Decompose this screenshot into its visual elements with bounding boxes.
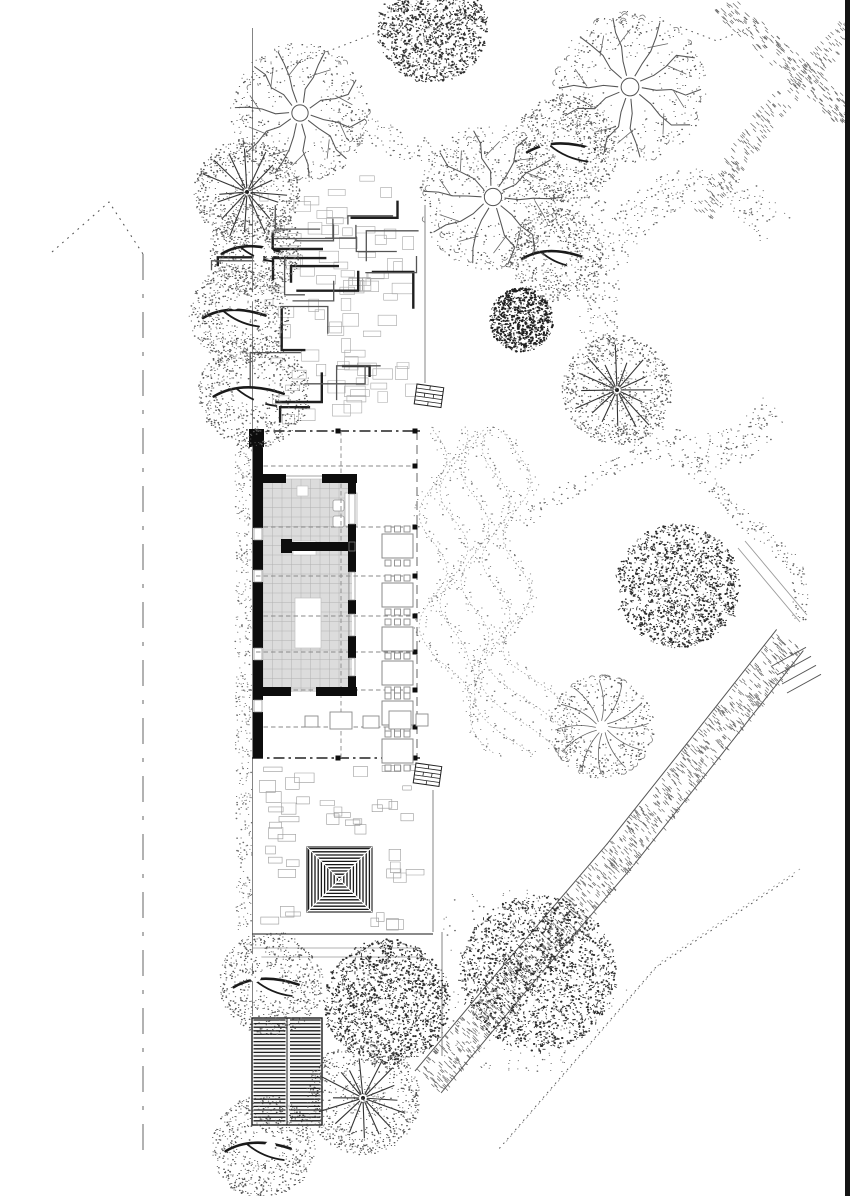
fixture — [333, 500, 344, 511]
terrace-waves — [414, 427, 581, 757]
chair — [385, 687, 391, 693]
window-opening — [254, 648, 262, 660]
table — [363, 716, 379, 728]
window-opening — [254, 700, 262, 712]
chair — [395, 575, 401, 581]
table — [305, 716, 318, 727]
path-band — [680, 24, 758, 41]
chair — [395, 609, 401, 615]
property-boundary — [52, 202, 143, 1158]
planting-strip — [236, 762, 252, 929]
chair — [395, 560, 401, 566]
table — [382, 583, 413, 607]
chair — [395, 765, 401, 771]
building-plan — [249, 429, 428, 772]
pavilion-roof — [307, 847, 372, 912]
table — [382, 627, 413, 651]
chair — [404, 653, 410, 659]
tree-symbol-leafyDark — [323, 939, 450, 1064]
column-marker — [413, 429, 418, 434]
chair — [404, 575, 410, 581]
chair — [395, 526, 401, 532]
path-band — [695, 22, 850, 219]
column-marker — [413, 688, 418, 693]
planting-strip — [235, 432, 252, 757]
tree-symbol-leafyDark — [616, 524, 740, 648]
gate-ramp — [414, 384, 444, 408]
boundary-apex — [52, 202, 143, 254]
path-band — [580, 169, 790, 471]
slatted-deck — [252, 1018, 322, 1125]
tree-symbol-radial — [562, 336, 671, 445]
table — [416, 714, 428, 726]
chair — [385, 693, 391, 699]
site-plan-canvas — [0, 0, 850, 1196]
chair — [395, 619, 401, 625]
column-marker — [413, 574, 418, 579]
chair — [395, 687, 401, 693]
chair — [385, 560, 391, 566]
chair — [395, 653, 401, 659]
column-marker — [336, 429, 341, 434]
path-band — [688, 459, 808, 619]
chair — [404, 526, 410, 532]
path-band — [520, 448, 649, 526]
chair — [385, 765, 391, 771]
tree-symbol-darkBush — [490, 288, 553, 352]
chair — [404, 619, 410, 625]
chair — [404, 765, 410, 771]
tree-symbol-snowflake — [553, 11, 706, 162]
path-band — [329, 110, 606, 225]
chair — [385, 653, 391, 659]
tree-symbol-leafyLight — [550, 675, 654, 778]
chair — [404, 687, 410, 693]
chair — [404, 731, 410, 737]
chair — [385, 575, 391, 581]
chair — [404, 693, 410, 699]
chair — [404, 609, 410, 615]
gate-ramp — [413, 763, 442, 786]
chair — [395, 693, 401, 699]
tree-symbol-leafyDark — [458, 895, 617, 1054]
column-marker — [336, 756, 341, 761]
chair — [385, 609, 391, 615]
table — [382, 739, 413, 763]
chair — [385, 526, 391, 532]
column-marker — [413, 614, 418, 619]
chair — [385, 619, 391, 625]
boundary-layer — [52, 0, 850, 1196]
page-edge-bar — [845, 0, 850, 1196]
column-marker — [413, 464, 418, 469]
table — [330, 712, 352, 729]
path-band — [738, 541, 807, 622]
chair — [395, 731, 401, 737]
chair — [404, 560, 410, 566]
table — [382, 661, 413, 685]
tree-symbol-stipple — [514, 94, 619, 202]
chair — [385, 731, 391, 737]
window-opening — [254, 528, 262, 540]
tree-symbol-leafyDark — [378, 0, 488, 82]
table — [389, 711, 411, 729]
table — [382, 534, 413, 558]
column-marker — [413, 525, 418, 530]
building-layer — [249, 429, 428, 772]
path-band — [415, 844, 633, 1093]
tree-symbol-radial — [307, 1042, 420, 1155]
fixture — [333, 516, 344, 527]
maze-walls-light — [212, 205, 419, 400]
site-plan-page — [0, 0, 850, 1196]
